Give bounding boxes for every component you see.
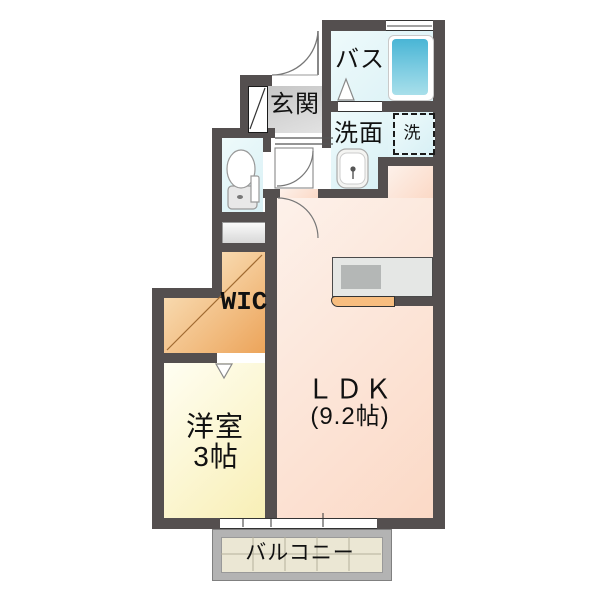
wall (265, 189, 277, 529)
kitchen-counter-front (331, 296, 395, 307)
shoe-cabinet (248, 86, 268, 133)
room-ldk (277, 198, 433, 518)
wall (377, 518, 445, 529)
kitchen-counter (332, 257, 433, 297)
room-ldk-kitchen-nook (388, 166, 433, 198)
toilet-front-door (222, 222, 270, 245)
ldk-label: ＬＤＫ (307, 377, 394, 404)
bathtub-water (392, 39, 428, 95)
balcony-label: バルコニー (245, 543, 355, 564)
wall (164, 353, 217, 363)
western-room-size-label: 3帖 (193, 443, 239, 471)
wall (322, 20, 331, 148)
washer-label: 洗 (404, 125, 421, 142)
wall (378, 157, 388, 198)
bath-label: バス (335, 48, 385, 72)
kitchen-wall-stub (394, 297, 443, 306)
entrance-label: 玄関 (270, 93, 320, 117)
wall (212, 212, 271, 222)
bathtub-icon (388, 35, 434, 101)
wall (152, 288, 164, 529)
entrance-door-arc (272, 31, 318, 75)
floorplan: バス 洗面 洗 玄関 WIC ＬＤＫ (9.2帖) 洋室 3帖 バルコニー (0, 0, 600, 600)
corridor-door (275, 148, 313, 188)
western-room-label: 洋室 (186, 413, 244, 441)
balcony-windows (220, 518, 377, 529)
wic-label: WIC (221, 289, 268, 315)
kitchen-sink-stove (341, 265, 381, 289)
ldk-size-label: (9.2帖) (310, 405, 389, 429)
room-toilet (222, 138, 263, 212)
wall (433, 20, 445, 529)
wall (322, 20, 387, 31)
ldk-door-opening (280, 189, 318, 198)
bath-door-opening (338, 101, 382, 112)
bath-window (386, 20, 433, 31)
washroom-label: 洗面 (334, 122, 384, 146)
wall (240, 75, 248, 133)
wall (152, 518, 220, 529)
wall (263, 138, 271, 152)
